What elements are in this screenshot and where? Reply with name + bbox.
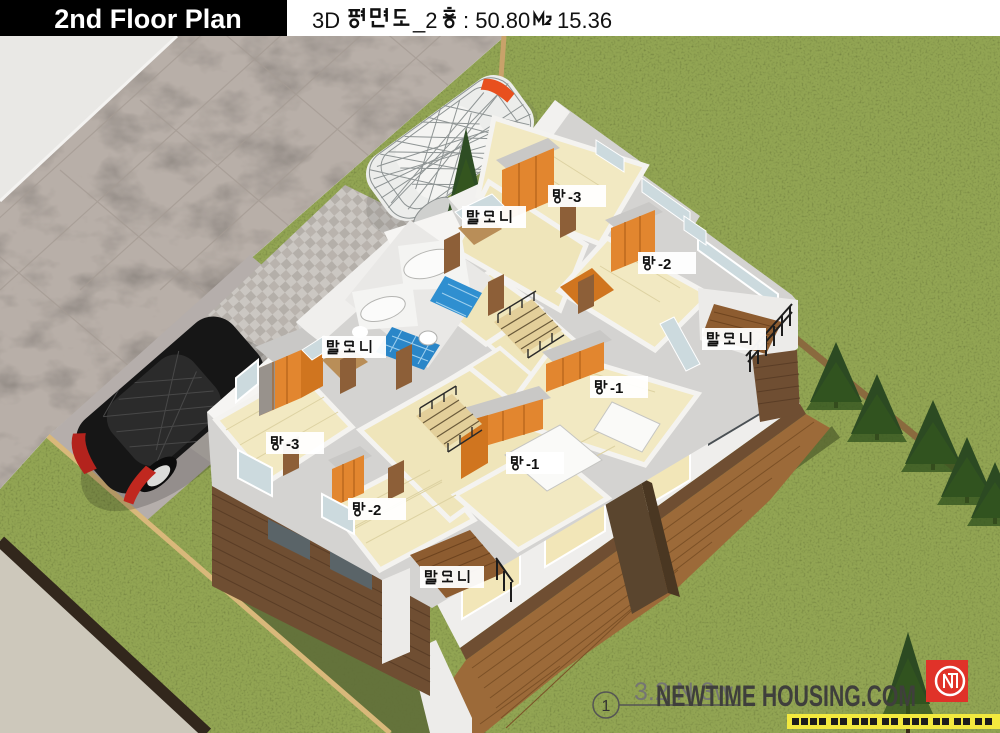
- svg-text:-3: -3: [568, 189, 581, 206]
- svg-text:-2: -2: [658, 256, 671, 273]
- svg-text:15.36: 15.36: [557, 8, 612, 33]
- svg-text:-1: -1: [610, 380, 623, 397]
- svg-text:NEWTIME HOUSING.COM: NEWTIME HOUSING.COM: [656, 680, 916, 713]
- svg-text:-1: -1: [526, 456, 539, 473]
- svg-text:: 50.80: : 50.80: [463, 8, 530, 33]
- svg-text:-2: -2: [368, 502, 381, 519]
- svg-text:_2: _2: [412, 8, 437, 33]
- svg-text:2nd Floor Plan: 2nd Floor Plan: [54, 4, 242, 34]
- svg-text:-3: -3: [286, 436, 299, 453]
- svg-text:3D: 3D: [312, 8, 340, 33]
- svg-text:1: 1: [602, 698, 611, 715]
